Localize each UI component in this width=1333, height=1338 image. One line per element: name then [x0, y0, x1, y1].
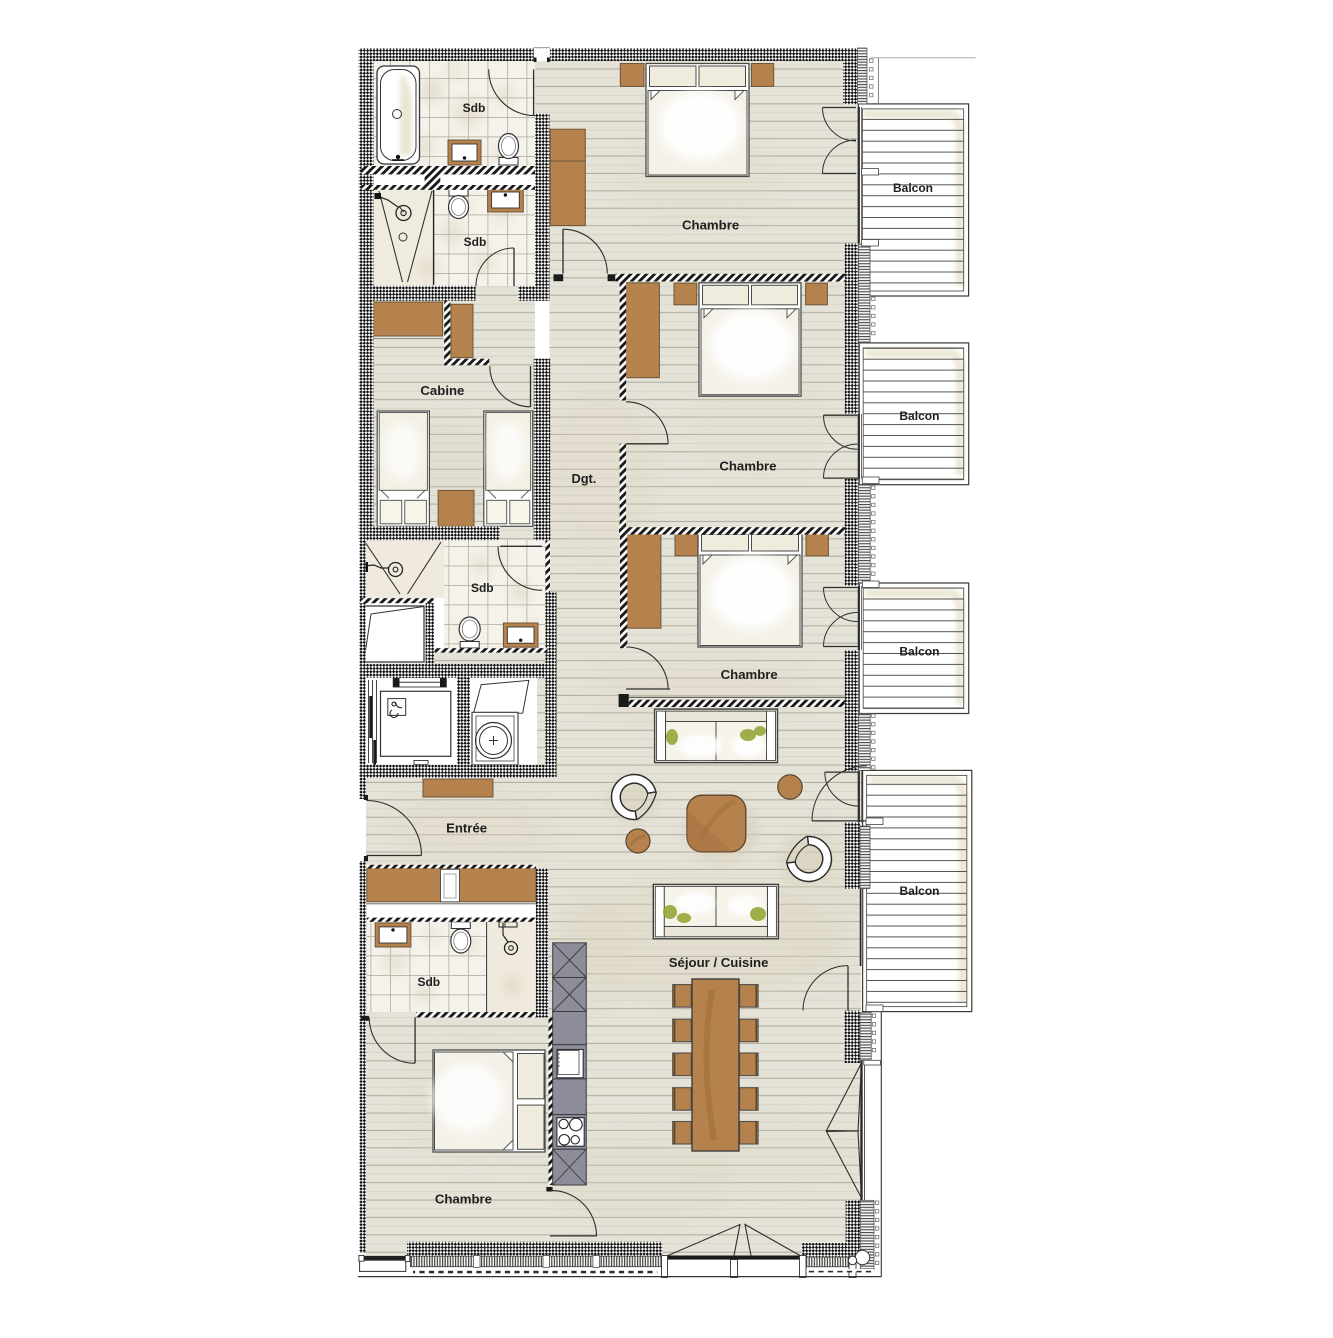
svg-text:Sdb: Sdb: [463, 101, 486, 115]
svg-text:Sdb: Sdb: [464, 235, 487, 249]
svg-text:Sdb: Sdb: [417, 975, 440, 989]
svg-text:Dgt.: Dgt.: [571, 471, 596, 486]
svg-text:Balcon: Balcon: [893, 181, 933, 195]
svg-text:Balcon: Balcon: [899, 409, 939, 423]
svg-text:Chambre: Chambre: [682, 218, 739, 233]
svg-text:Balcon: Balcon: [899, 884, 939, 898]
svg-text:Cabine: Cabine: [420, 383, 464, 398]
svg-text:Entrée: Entrée: [446, 820, 487, 835]
svg-text:Séjour / Cuisine: Séjour / Cuisine: [669, 955, 769, 970]
svg-text:Chambre: Chambre: [435, 1192, 492, 1207]
svg-text:Chambre: Chambre: [721, 667, 778, 682]
svg-text:Balcon: Balcon: [899, 644, 939, 658]
svg-text:Sdb: Sdb: [471, 581, 494, 595]
svg-text:Chambre: Chambre: [719, 458, 776, 473]
